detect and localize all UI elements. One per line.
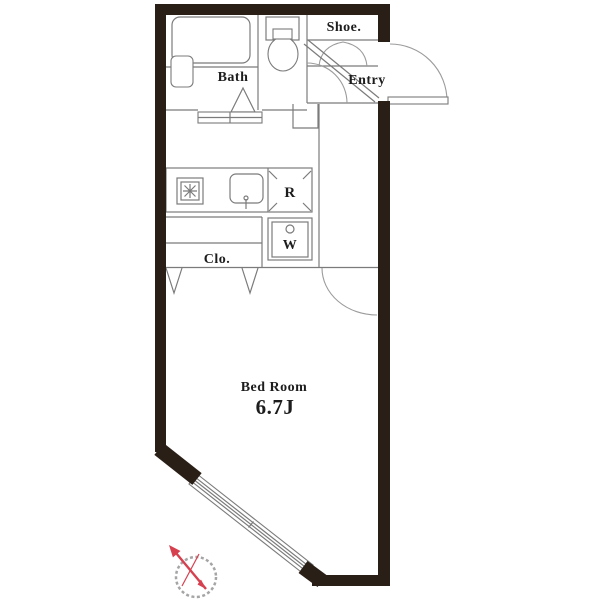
kitchen-sink-icon — [230, 174, 263, 209]
fridge-space: R — [269, 171, 311, 211]
entry-step — [293, 104, 318, 128]
compass-icon — [169, 545, 216, 597]
bedroom-label: Bed Room — [241, 380, 308, 395]
washer-space: W — [268, 218, 312, 260]
entry-area: Shoe. Entry — [304, 20, 448, 104]
stove-burner-icon — [177, 178, 203, 204]
bath-sink-icon — [171, 56, 193, 87]
floorplan-svg: Bath Shoe. Entry R — [0, 0, 600, 600]
closet-label: Clo. — [204, 252, 231, 267]
compass-crossline — [182, 554, 199, 586]
floorplan-canvas: Bath Shoe. Entry R — [0, 0, 600, 600]
entry-step-diagonal — [304, 40, 379, 102]
closet: Clo. — [166, 217, 262, 293]
bath-room: Bath — [171, 17, 262, 123]
washer-label: W — [283, 238, 298, 253]
washer-faucet-icon — [286, 225, 294, 233]
bath-door-triangle-icon — [231, 88, 255, 112]
bath-sliding-door — [198, 112, 262, 123]
fridge-label: R — [284, 185, 295, 201]
toilet-bowl-icon — [268, 37, 298, 71]
wall-diagonal-upper — [159, 449, 197, 479]
bedroom: Bed Room 6.7J — [241, 268, 377, 419]
entry-label: Entry — [348, 73, 386, 88]
kitchen: R W — [166, 168, 312, 260]
bedroom-door-arc — [322, 268, 377, 315]
wall-diagonal-lower — [303, 567, 322, 581]
shoe-label: Shoe. — [327, 20, 362, 35]
sink-basin — [230, 174, 263, 203]
wall-left — [155, 4, 166, 452]
wall-right-top — [378, 4, 390, 42]
bedroom-size-label: 6.7J — [256, 395, 295, 419]
outer-walls — [155, 4, 390, 586]
front-door-arc — [390, 44, 447, 101]
wall-right — [378, 101, 390, 586]
toilet-door-arc — [307, 63, 347, 103]
front-door-panel — [388, 97, 448, 104]
toilet-flush-icon — [273, 29, 292, 39]
bath-label: Bath — [218, 70, 249, 85]
stove-spokes — [183, 184, 197, 198]
wall-top — [155, 4, 390, 15]
closet-door-marks — [166, 268, 258, 293]
